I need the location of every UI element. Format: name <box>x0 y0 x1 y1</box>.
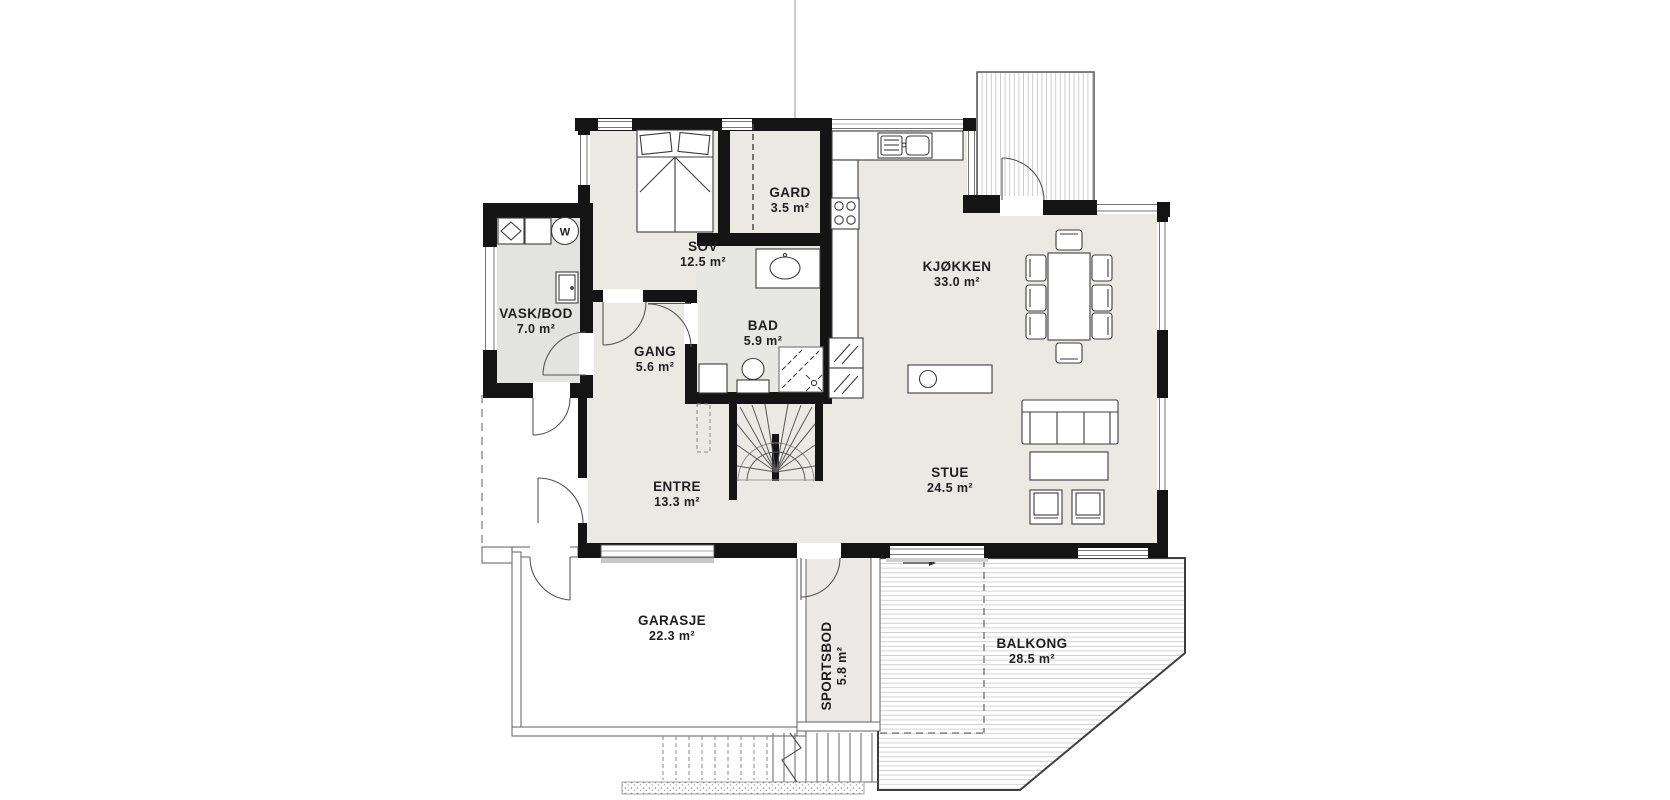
room-label-sportsbod: SPORTSBOD 5.8 m² <box>819 621 851 710</box>
break-line <box>782 733 801 782</box>
room-area: 12.5 m² <box>680 256 726 271</box>
outdoor-stairs <box>622 733 878 794</box>
laundry-counter-unit <box>525 218 551 244</box>
gravel-strip <box>622 782 864 794</box>
garage-entry-step <box>482 547 512 563</box>
room-label-bad: BAD 5.9 m² <box>744 318 783 350</box>
room-name: GARD <box>769 185 810 201</box>
garage-door-band <box>601 545 714 563</box>
room-area: 3.5 m² <box>769 202 810 217</box>
shower-head <box>811 380 816 385</box>
washing-machine-label: W <box>560 227 571 239</box>
dining-chair <box>1026 285 1046 311</box>
room-area: 13.3 m² <box>653 496 701 511</box>
entrance-door-opening <box>1000 196 1043 216</box>
room-area: 7.0 m² <box>499 323 572 338</box>
dining-chair <box>1056 343 1082 363</box>
window <box>1097 202 1157 214</box>
window <box>722 119 752 130</box>
balcony-deck <box>878 558 1185 790</box>
balcony-sliding-door <box>886 546 988 562</box>
window <box>483 247 497 350</box>
room-label-kjokken: KJØKKEN 33.0 m² <box>923 259 992 291</box>
dining-table <box>1048 253 1090 340</box>
shower <box>779 347 823 392</box>
room-name: KJØKKEN <box>923 259 992 275</box>
room-label-sov: SOV 12.5 m² <box>680 239 726 271</box>
armchair <box>1030 490 1062 524</box>
room-label-vask-bod: VASK/BOD 7.0 m² <box>499 306 572 338</box>
room-area: 22.3 m² <box>638 630 706 645</box>
kitchen-sink <box>906 136 929 155</box>
kitchen-counter-side <box>832 160 858 338</box>
double-bed <box>637 130 713 232</box>
window <box>578 135 590 185</box>
room-name: VASK/BOD <box>499 306 572 322</box>
floor-plan-page: W SOV 12.5 m² GARD 3.5 m² KJØKKEN 33.0 m… <box>0 0 1670 800</box>
room-label-gang: GANG 5.6 m² <box>634 344 676 376</box>
dining-chair <box>1056 230 1082 250</box>
room-name: BALKONG <box>996 636 1067 652</box>
room-name: GARASJE <box>638 613 706 629</box>
entrance-porch <box>977 72 1094 204</box>
room-area: 5.6 m² <box>634 361 676 376</box>
vanity-sink <box>756 249 820 288</box>
room-area: 28.5 m² <box>996 653 1067 668</box>
dining-chair <box>1092 285 1112 311</box>
room-area: 5.8 m² <box>836 621 851 710</box>
dining-chair <box>1092 255 1112 281</box>
room-name: GANG <box>634 344 676 360</box>
room-name: STUE <box>927 465 973 481</box>
coffee-table <box>1030 452 1108 480</box>
dining-chair <box>1026 255 1046 281</box>
room-label-gard: GARD 3.5 m² <box>769 185 810 217</box>
dining-chair <box>1092 313 1112 339</box>
window <box>1157 398 1168 490</box>
fridge-freezer <box>829 338 863 398</box>
room-area: 33.0 m² <box>923 276 992 291</box>
room-label-garasje: GARASJE 22.3 m² <box>638 613 706 645</box>
window <box>1157 222 1168 330</box>
kitchen-island <box>908 365 992 393</box>
dining-chair <box>1026 313 1046 339</box>
room-label-stue: STUE 24.5 m² <box>927 465 973 497</box>
room-name: SOV <box>680 239 726 255</box>
room-label-balkong: BALKONG 28.5 m² <box>996 636 1067 668</box>
room-area: 5.9 m² <box>744 335 783 350</box>
room-name: BAD <box>744 318 783 334</box>
room-area: 24.5 m² <box>927 482 973 497</box>
sofa <box>1022 400 1118 444</box>
faucet <box>902 143 906 147</box>
window <box>598 119 632 130</box>
room-label-entre: ENTRE 13.3 m² <box>653 479 701 511</box>
armchair <box>1072 490 1104 524</box>
room-name: SPORTSBOD <box>819 621 835 710</box>
room-name: ENTRE <box>653 479 701 495</box>
wall-cabinet <box>556 272 578 303</box>
window <box>1078 548 1148 558</box>
hall-cabinet <box>699 364 727 393</box>
cooktop <box>831 198 859 229</box>
